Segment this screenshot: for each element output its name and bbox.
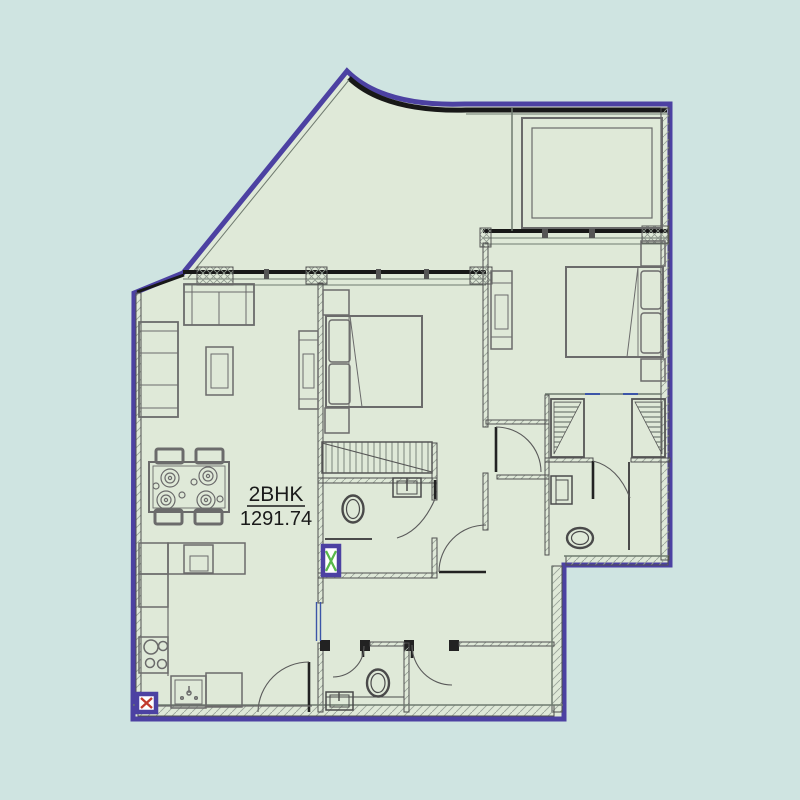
plan-labels: 2BHK 1291.74 [240,483,312,530]
vestibule-wall [497,475,549,479]
unit-area-label: 1291.74 [240,508,312,530]
toilet-top-wall [370,642,404,646]
column-block [306,267,327,284]
bathroom1-right-wall [432,538,437,578]
floor-plan-drawing: 2BHK 1291.74 [0,0,800,800]
toilet-wall [318,643,323,712]
shaft-green-icon [323,546,339,575]
vestibule-wall [486,420,549,424]
corridor-wall [483,473,488,530]
window-mullion [424,269,429,279]
wardrobe-sliding-icon [322,442,432,473]
window-mullion [542,228,548,238]
step-wall [566,556,668,565]
washbasin-icon [393,478,421,497]
corridor-wall [483,243,488,427]
lower-right-wall [552,566,562,712]
shaft-red-icon [137,694,156,712]
bathroom2-top-wall [545,458,593,462]
window-mullion [376,269,381,279]
bathroom2-left-wall [545,395,549,555]
unit-type-label: 2BHK [249,483,304,506]
window-mullion [589,228,595,238]
bathroom2-top-wall [631,458,670,462]
column-block [470,267,492,284]
floor-plan-canvas: 2BHK 1291.74 [0,0,800,800]
toilet-divider-wall [404,643,409,712]
hall-bottom-wall [459,642,554,646]
column-block [197,267,233,285]
window-mullion [264,269,269,279]
